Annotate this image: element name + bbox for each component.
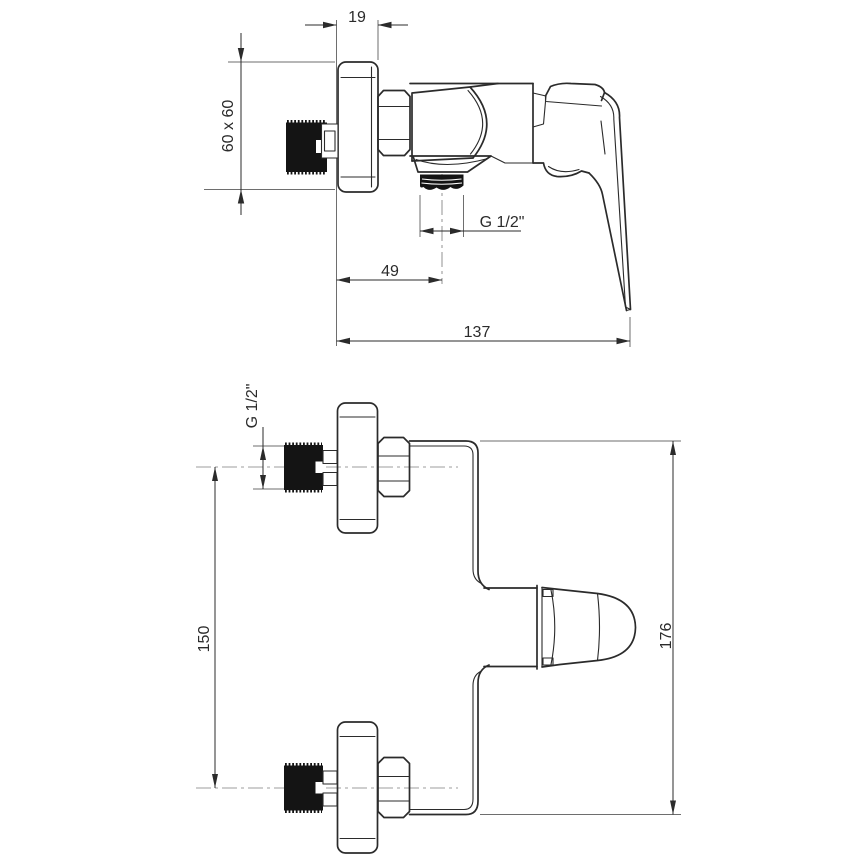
dim-outlet-thread-label: G 1/2": [480, 214, 525, 231]
arrowhead: [212, 774, 218, 788]
lever-handle-front: [537, 586, 636, 670]
technical-drawing-page: 19 60 x 60 G 1/2" 49 137: [0, 0, 868, 868]
arrowhead: [617, 338, 631, 344]
side-view: 19 60 x 60 G 1/2" 49 137: [204, 9, 631, 347]
technical-drawing-canvas: 19 60 x 60 G 1/2" 49 137: [0, 0, 868, 868]
front-view: G 1/2" 150 176: [196, 384, 681, 853]
dim-plate-depth: 19: [305, 9, 408, 28]
arrowhead: [323, 22, 337, 28]
arrowhead: [670, 441, 676, 455]
outlet-thread-side: [420, 175, 464, 190]
arrowhead: [212, 467, 218, 481]
dim-inlet-spacing: 150: [196, 467, 218, 788]
dim-total-height-label: 176: [658, 623, 675, 650]
dim-plate-size: 60 x 60: [220, 33, 244, 215]
dim-outlet-offset: 49: [337, 263, 443, 283]
dim-outlet-offset-label: 49: [381, 263, 399, 280]
arrowhead: [450, 228, 464, 234]
arrowhead: [429, 277, 443, 283]
extension-lines-side: [204, 20, 630, 347]
dim-inlet-thread: G 1/2": [244, 384, 266, 489]
arrowhead: [420, 228, 434, 234]
upper-wall-plate: [338, 403, 378, 533]
arrowhead: [238, 48, 244, 62]
lever-handle-side: [546, 83, 631, 310]
arrowhead: [260, 475, 266, 489]
valve-body-front: [410, 441, 538, 815]
dim-inlet-spacing-label: 150: [196, 626, 213, 653]
arrowhead: [378, 22, 392, 28]
dim-inlet-thread-label: G 1/2": [244, 384, 261, 429]
inlet-thread-side: [286, 122, 338, 174]
wall-plate-side: [338, 62, 378, 192]
extension-lines-front: [253, 441, 681, 815]
arrowhead: [670, 801, 676, 815]
arrowhead: [238, 190, 244, 204]
dim-total-depth: 137: [337, 324, 631, 344]
mounting-nut-side: [378, 91, 410, 156]
arrowhead: [260, 446, 266, 460]
dim-outlet-thread: G 1/2": [420, 214, 524, 234]
arrowhead: [337, 338, 351, 344]
dim-total-depth-label: 137: [464, 324, 491, 341]
dim-plate-size-label: 60 x 60: [220, 100, 237, 153]
dim-plate-depth-label: 19: [348, 9, 366, 26]
valve-body-side: [410, 84, 589, 177]
dim-total-height: 176: [658, 441, 676, 815]
arrowhead: [337, 277, 351, 283]
